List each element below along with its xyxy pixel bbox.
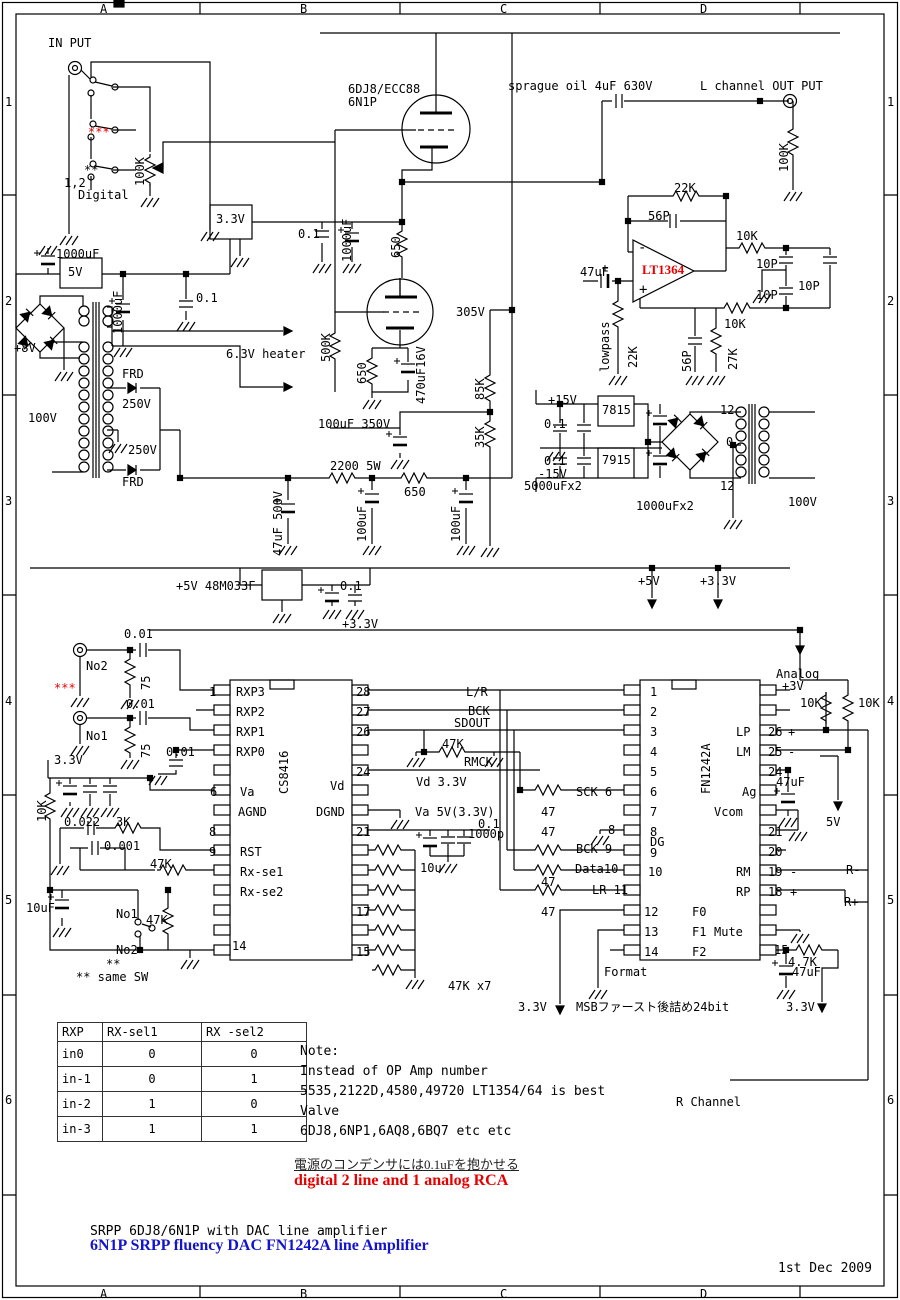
- schematic-label: 12: [720, 480, 734, 492]
- schematic-label: 6: [650, 786, 657, 798]
- border-index-label: 1: [5, 95, 12, 109]
- schematic-label: 5000uFx2: [524, 480, 582, 492]
- border-index-label: D: [700, 1287, 707, 1300]
- border-index-label: 4: [5, 694, 12, 708]
- schematic-label: 5V: [68, 266, 82, 278]
- schematic-label: 47uF 500V: [272, 491, 284, 556]
- border-index-label: C: [500, 1287, 507, 1300]
- schematic-label: 47uF: [776, 776, 805, 788]
- selector-switches: [88, 77, 155, 937]
- regulator-48m033f: [262, 570, 302, 600]
- chip-pin: [214, 745, 230, 755]
- schematic-label: 12: [720, 404, 734, 416]
- schematic-label: 28: [356, 686, 370, 698]
- digital-jack-no2: [74, 644, 87, 657]
- rx-table-cell: in-1: [58, 1067, 103, 1092]
- rx-table-cell: 1: [103, 1092, 202, 1117]
- chip-pin: [352, 745, 368, 755]
- schematic-label: +3.3V: [342, 618, 378, 630]
- rx-table-row: in-101: [58, 1067, 307, 1092]
- chip-pin: [624, 785, 640, 795]
- schematic-label: No1: [86, 730, 108, 742]
- schematic-label: 100uF: [356, 506, 368, 542]
- schematic-label: 10K: [36, 800, 48, 822]
- schematic-label: 0.01: [124, 628, 153, 640]
- schematic-label: 75: [140, 676, 152, 690]
- chip-pin: [624, 845, 640, 855]
- schematic-label: SDOUT: [454, 717, 490, 729]
- rx-table-row: in-311: [58, 1117, 307, 1142]
- schematic-label: +3V: [782, 680, 804, 692]
- schematic-label: 10u: [420, 862, 442, 874]
- vacuum-tube-upper: [402, 95, 470, 163]
- rx-table-cell: in-2: [58, 1092, 103, 1117]
- schematic-label: Data10: [575, 863, 618, 875]
- border-index-label: 3: [5, 494, 12, 508]
- chip-pin: [214, 685, 230, 695]
- schematic-label: 21: [768, 826, 782, 838]
- schematic-label: Mute: [714, 926, 743, 938]
- schematic-label: 1000uF: [56, 248, 99, 260]
- schematic-label: +5V 48M033F: [176, 580, 255, 592]
- schematic-label: 3: [650, 726, 657, 738]
- schematic-label: 26: [356, 726, 370, 738]
- transformer-left: [79, 302, 113, 478]
- schematic-label: R-: [846, 864, 860, 876]
- schematic-label: 2: [650, 706, 657, 718]
- schematic-label: Rx-se2: [240, 886, 283, 898]
- schematic-label: 47K: [150, 858, 172, 870]
- border-index-label: 2: [5, 294, 12, 308]
- schematic-label: SCK 6: [576, 786, 612, 798]
- schematic-label: 18: [768, 886, 782, 898]
- schematic-label: 1000uFx2: [636, 500, 694, 512]
- schematic-label: **: [84, 164, 98, 176]
- schematic-label: BCK 9: [576, 843, 612, 855]
- schematic-label: 47K: [442, 738, 464, 750]
- transformer-right: [736, 404, 769, 484]
- schematic-label: 0.1: [544, 455, 566, 467]
- schematic-label: Format: [604, 966, 647, 978]
- schematic-label: 9: [209, 846, 216, 858]
- chip-cs8416: [230, 680, 352, 960]
- wires: [16, 33, 868, 1080]
- schematic-label: 25: [768, 746, 782, 758]
- schematic-label: 10uF: [26, 902, 55, 914]
- schematic-label: 27: [356, 706, 370, 718]
- chip-pin: [352, 865, 368, 875]
- note-line: Note:: [300, 1044, 339, 1059]
- chip-pin: [214, 805, 230, 815]
- schematic-label: RMCK: [464, 756, 493, 768]
- schematic-label: 4: [650, 746, 657, 758]
- schematic-label: 250V: [128, 444, 157, 456]
- chip-pin: [214, 825, 230, 835]
- jp-power-note: 電源のコンデンサには0.1uFを抱かせる: [294, 1154, 519, 1173]
- rx-table-header: RX-sel1: [103, 1023, 202, 1042]
- schematic-label: sprague oil 4uF 630V: [508, 80, 653, 92]
- schematic-label: 15: [774, 944, 788, 956]
- border-index-label: 2: [887, 294, 894, 308]
- schematic-label: 470uF16V: [415, 346, 427, 404]
- schematic-label: 10K: [736, 230, 758, 242]
- chip-pin: [760, 685, 776, 695]
- red-note: digital 2 line and 1 analog RCA: [294, 1172, 508, 1190]
- schematic-label: 13: [644, 926, 658, 938]
- schematic-label: 47: [541, 806, 555, 818]
- rx-table-cell: in-3: [58, 1117, 103, 1142]
- rx-table-cell: in0: [58, 1042, 103, 1067]
- chip-pin: [624, 745, 640, 755]
- schematic-label: L/R: [466, 686, 488, 698]
- chip-pin: [214, 705, 230, 715]
- schematic-label: 10K: [858, 697, 880, 709]
- schematic-label: 47: [541, 876, 555, 888]
- chip-pin: [214, 765, 230, 775]
- schematic-label: -: [638, 242, 646, 254]
- chip-pin: [214, 885, 230, 895]
- schematic-label: FRD: [122, 476, 144, 488]
- schematic-label: Rx-se1: [240, 866, 283, 878]
- chip-pin: [624, 945, 640, 955]
- rx-table-header: RXP: [58, 1023, 103, 1042]
- schematic-label: +: [788, 726, 795, 738]
- schematic-label: 10P: [756, 289, 778, 301]
- border-index-label: 4: [887, 694, 894, 708]
- schematic-page: IN PUT*****1,2Digital100K6DJ8/ECC886N1Ps…: [0, 0, 900, 1300]
- chip-pin: [214, 845, 230, 855]
- schematic-label: 14: [644, 946, 658, 958]
- schematic-label: -: [788, 746, 795, 758]
- schematic-label: 0.1: [544, 418, 566, 430]
- schematic-label: 3K: [116, 816, 130, 828]
- schematic-label: AGND: [238, 806, 267, 818]
- chip-pin: [624, 725, 640, 735]
- schematic-label: L channel OUT PUT: [700, 80, 823, 92]
- schematic-label: 100uF 350V: [318, 418, 390, 430]
- chip-pin: [352, 885, 368, 895]
- schematic-label: 650: [404, 486, 426, 498]
- border-index-label: 5: [887, 893, 894, 907]
- schematic-label: 26: [768, 726, 782, 738]
- schematic-label: 10P: [756, 258, 778, 270]
- chip-pin: [352, 925, 368, 935]
- schematic-label: F2: [692, 946, 706, 958]
- schematic-label: 650: [390, 236, 402, 258]
- rx-table-cell: 1: [202, 1067, 307, 1092]
- schematic-label: 14: [232, 940, 246, 952]
- schematic-label: RXP1: [236, 726, 265, 738]
- schematic-label: 100V: [28, 412, 57, 424]
- rx-table-row: in000: [58, 1042, 307, 1067]
- border-index-label: 6: [887, 1093, 894, 1107]
- schematic-label: +: [790, 886, 797, 898]
- bridge-rectifier-right: [662, 414, 718, 470]
- schematic-label: 1: [209, 686, 216, 698]
- schematic-label: No2: [116, 944, 138, 956]
- schematic-label: 21: [356, 826, 370, 838]
- input-jack: [69, 62, 82, 75]
- schematic-label: -: [790, 866, 797, 878]
- schematic-label: 9: [650, 847, 657, 859]
- rx-select-table: RXPRX-sel1RX -sel2 in000in-101in-210in-3…: [57, 1022, 307, 1142]
- chip-pin: [214, 925, 230, 935]
- schematic-label: 100V: [788, 496, 817, 508]
- schematic-label: F0: [692, 906, 706, 918]
- chip-pin: [760, 805, 776, 815]
- chip-pin: [760, 905, 776, 915]
- schematic-label: 0.1: [298, 228, 320, 240]
- schematic-label: 6.3V heater: [226, 348, 305, 360]
- schematic-label: 100uF: [450, 506, 462, 542]
- schematic-label: 24: [356, 766, 370, 778]
- chip-pin: [214, 905, 230, 915]
- rx-table-cell: 0: [202, 1092, 307, 1117]
- note-line: Instead of OP Amp number: [300, 1064, 488, 1079]
- schematic-label: 35K: [474, 426, 486, 448]
- schematic-label: Vd: [330, 780, 344, 792]
- border-index-label: 6: [5, 1093, 12, 1107]
- schematic-label: 0.1: [196, 292, 218, 304]
- rx-table-header-row: RXPRX-sel1RX -sel2: [58, 1023, 307, 1042]
- schematic-label: +: [639, 284, 647, 296]
- schematic-label: FRD: [122, 368, 144, 380]
- schematic-label: 500K: [320, 333, 332, 362]
- schematic-label: RP: [736, 886, 750, 898]
- title-blue: 6N1P SRPP fluency DAC FN1242A line Ampli…: [90, 1237, 429, 1255]
- schematic-label: 0.01: [126, 698, 155, 710]
- chip-pin: [352, 805, 368, 815]
- schematic-label: +8V: [14, 342, 36, 354]
- chip-pin: [760, 785, 776, 795]
- chip-pin: [214, 945, 230, 955]
- schematic-label: RXP3: [236, 686, 265, 698]
- schematic-label: Ag: [742, 786, 756, 798]
- border-index-label: B: [300, 2, 307, 16]
- schematic-label: 7: [650, 806, 657, 818]
- schematic-label: 19: [768, 866, 782, 878]
- chip-pin: [352, 785, 368, 795]
- schematic-label: Vcom: [714, 806, 743, 818]
- schematic-label: 650: [356, 362, 368, 384]
- chip-pin: [760, 705, 776, 715]
- chip-pin: [624, 765, 640, 775]
- schematic-label: ***: [88, 126, 110, 138]
- note-line: Valve: [300, 1104, 339, 1119]
- schematic-label: 1000uF: [341, 219, 353, 262]
- schematic-label: 12: [644, 906, 658, 918]
- schematic-label: lowpass: [599, 321, 611, 372]
- frd-diode-top: [128, 383, 136, 393]
- schematic-label: Digital: [78, 189, 129, 201]
- schematic-label: 6: [210, 786, 217, 798]
- chip-pin: [624, 865, 640, 875]
- schematic-label: 5: [650, 766, 657, 778]
- schematic-label: 1: [650, 686, 657, 698]
- schematic-label: LR 11: [592, 884, 628, 896]
- schematic-label: 7915: [602, 454, 631, 466]
- schematic-label: 0.001: [104, 840, 140, 852]
- schematic-label: 10P: [798, 280, 820, 292]
- schematic-label: MSBファースト後詰め24bit: [576, 1001, 729, 1013]
- ground-symbols: [39, 192, 809, 999]
- schematic-label: 2200 5W: [330, 460, 381, 472]
- chip-pin: [624, 685, 640, 695]
- note-line: 6DJ8,6NP1,6AQ8,6BQ7 etc etc: [300, 1124, 511, 1139]
- schematic-label: 0.022: [64, 816, 100, 828]
- schematic-label: 100K: [134, 157, 146, 186]
- digital-jack-no1: [74, 712, 87, 725]
- border-index-label: A: [100, 2, 107, 16]
- schematic-label: 0: [726, 436, 733, 448]
- schematic-label: 3.3V: [54, 754, 83, 766]
- chip-pin: [624, 805, 640, 815]
- schematic-label: F1: [692, 926, 706, 938]
- schematic-label: 47K x7: [448, 980, 491, 992]
- rx-table-cell: 1: [202, 1117, 307, 1142]
- schematic-label: 10K: [724, 318, 746, 330]
- schematic-label: LP: [736, 726, 750, 738]
- rx-table-cell: 1: [103, 1117, 202, 1142]
- schematic-label: 8: [608, 824, 615, 836]
- schematic-label: Vd 3.3V: [416, 776, 467, 788]
- border-index-label: 3: [887, 494, 894, 508]
- schematic-label: 56P: [681, 350, 693, 372]
- chip-pin: [214, 865, 230, 875]
- schematic-label: 75: [140, 744, 152, 758]
- schematic-label: No2: [86, 660, 108, 672]
- schematic-label: 7815: [602, 404, 631, 416]
- schematic-label: +3.3V: [700, 575, 736, 587]
- schematic-label: **: [106, 958, 120, 970]
- schematic-label: 85K: [474, 378, 486, 400]
- schematic-label: DGND: [316, 806, 345, 818]
- schematic-label: 10K: [800, 697, 822, 709]
- schematic-label: 27K: [727, 348, 739, 370]
- chip-pin: [352, 845, 368, 855]
- rx-table-header: RX -sel2: [202, 1023, 307, 1042]
- rx-table-cell: 0: [103, 1042, 202, 1067]
- schematic-label: ***: [54, 682, 76, 694]
- schematic-label: 3.3V: [216, 213, 245, 225]
- schematic-label: FN1242A: [700, 743, 712, 794]
- chip-pin: [624, 905, 640, 915]
- schematic-label: 47: [541, 826, 555, 838]
- schematic-label: 47uF: [792, 966, 821, 978]
- border-index-label: C: [500, 2, 507, 16]
- chip-pin: [624, 705, 640, 715]
- border-index-label: A: [100, 1287, 107, 1300]
- schematic-label: 47uF: [580, 266, 609, 278]
- schematic-label: R+: [844, 896, 858, 908]
- schematic-label: No1: [116, 908, 138, 920]
- schematic-label: 100K: [778, 143, 790, 172]
- schematic-label: 22K: [627, 346, 639, 368]
- border-index-label: 1: [887, 95, 894, 109]
- chip-pin: [624, 825, 640, 835]
- schematic-label: 250V: [122, 398, 151, 410]
- schematic-label: 0.1: [340, 580, 362, 592]
- rx-table-row: in-210: [58, 1092, 307, 1117]
- schematic-label: 305V: [456, 306, 485, 318]
- schematic-label: 0.01: [166, 746, 195, 758]
- schematic-label: R Channel: [676, 1096, 741, 1108]
- schematic-label: 3.3V: [786, 1001, 815, 1013]
- schematic-label: 17: [356, 906, 370, 918]
- border-index-label: D: [700, 2, 707, 16]
- schematic-label: 5V: [826, 816, 840, 828]
- schematic-label: 1000p: [468, 828, 504, 840]
- border-index-label: B: [300, 1287, 307, 1300]
- chip-pin: [214, 725, 230, 735]
- schematic-label: 47: [541, 906, 555, 918]
- wire-opamp: [583, 196, 830, 374]
- schematic-label: LT1364: [642, 264, 684, 276]
- schematic-label: 15: [356, 946, 370, 958]
- schematic-label: 3.3V: [518, 1001, 547, 1013]
- schematic-label: 22K: [674, 182, 696, 194]
- schematic-label: RXP2: [236, 706, 265, 718]
- schematic-label: 47K: [146, 914, 168, 926]
- border-index-label: 5: [5, 893, 12, 907]
- schematic-label: 6DJ8/ECC88: [348, 83, 420, 95]
- schematic-label: ** same SW: [76, 971, 148, 983]
- schematic-label: IN PUT: [48, 37, 91, 49]
- schematic-label: +15V: [548, 394, 577, 406]
- schematic-label: 10: [648, 866, 662, 878]
- schematic-label: Va: [240, 786, 254, 798]
- schematic-label: 8: [209, 826, 216, 838]
- schematic-label: RXP0: [236, 746, 265, 758]
- chip-pin: [624, 925, 640, 935]
- schematic-label: +5V: [638, 575, 660, 587]
- chip-pin: [760, 925, 776, 935]
- schematic-label: LM: [736, 746, 750, 758]
- date-label: 1st Dec 2009: [778, 1261, 872, 1276]
- note-line: 5535,2122D,4580,49720 LT1354/64 is best: [300, 1084, 605, 1099]
- schematic-label: RST: [240, 846, 262, 858]
- schematic-label: CS8416: [278, 751, 290, 794]
- frd-diode-bottom: [128, 465, 136, 475]
- schematic-label: 20: [768, 846, 782, 858]
- schematic-label: 56P: [648, 210, 670, 222]
- rx-table-cell: 0: [103, 1067, 202, 1092]
- schematic-label: 1000uF: [112, 291, 124, 334]
- schematic-label: RM: [736, 866, 750, 878]
- rx-table-cell: 0: [202, 1042, 307, 1067]
- wire-psu-left: [16, 239, 512, 546]
- schematic-label: 6N1P: [348, 96, 377, 108]
